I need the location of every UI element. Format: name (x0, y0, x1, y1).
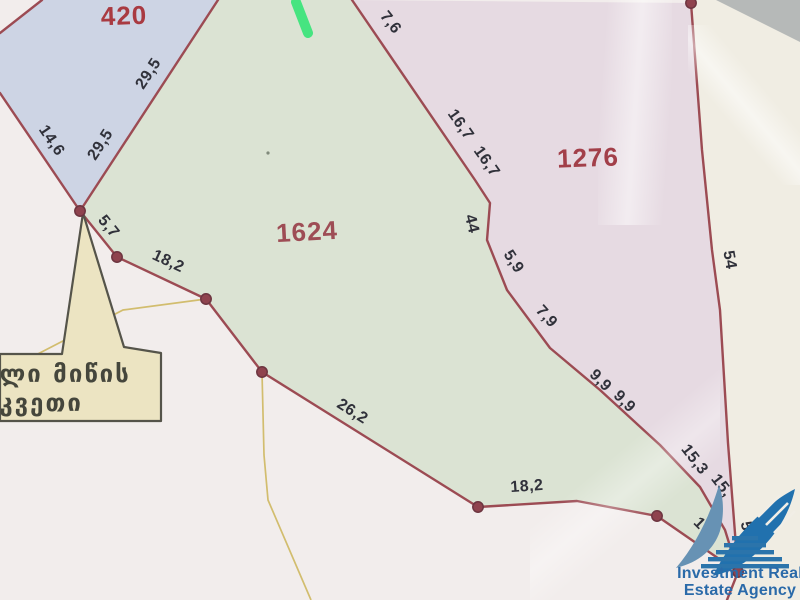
logo-sail-light-icon (676, 485, 723, 568)
cadastral-map-scan: ილი მიწის აკვეთი 14,629,529,55,718,226,2… (0, 0, 800, 600)
agency-logo (0, 0, 800, 600)
logo-sail-dark-icon (713, 489, 795, 576)
